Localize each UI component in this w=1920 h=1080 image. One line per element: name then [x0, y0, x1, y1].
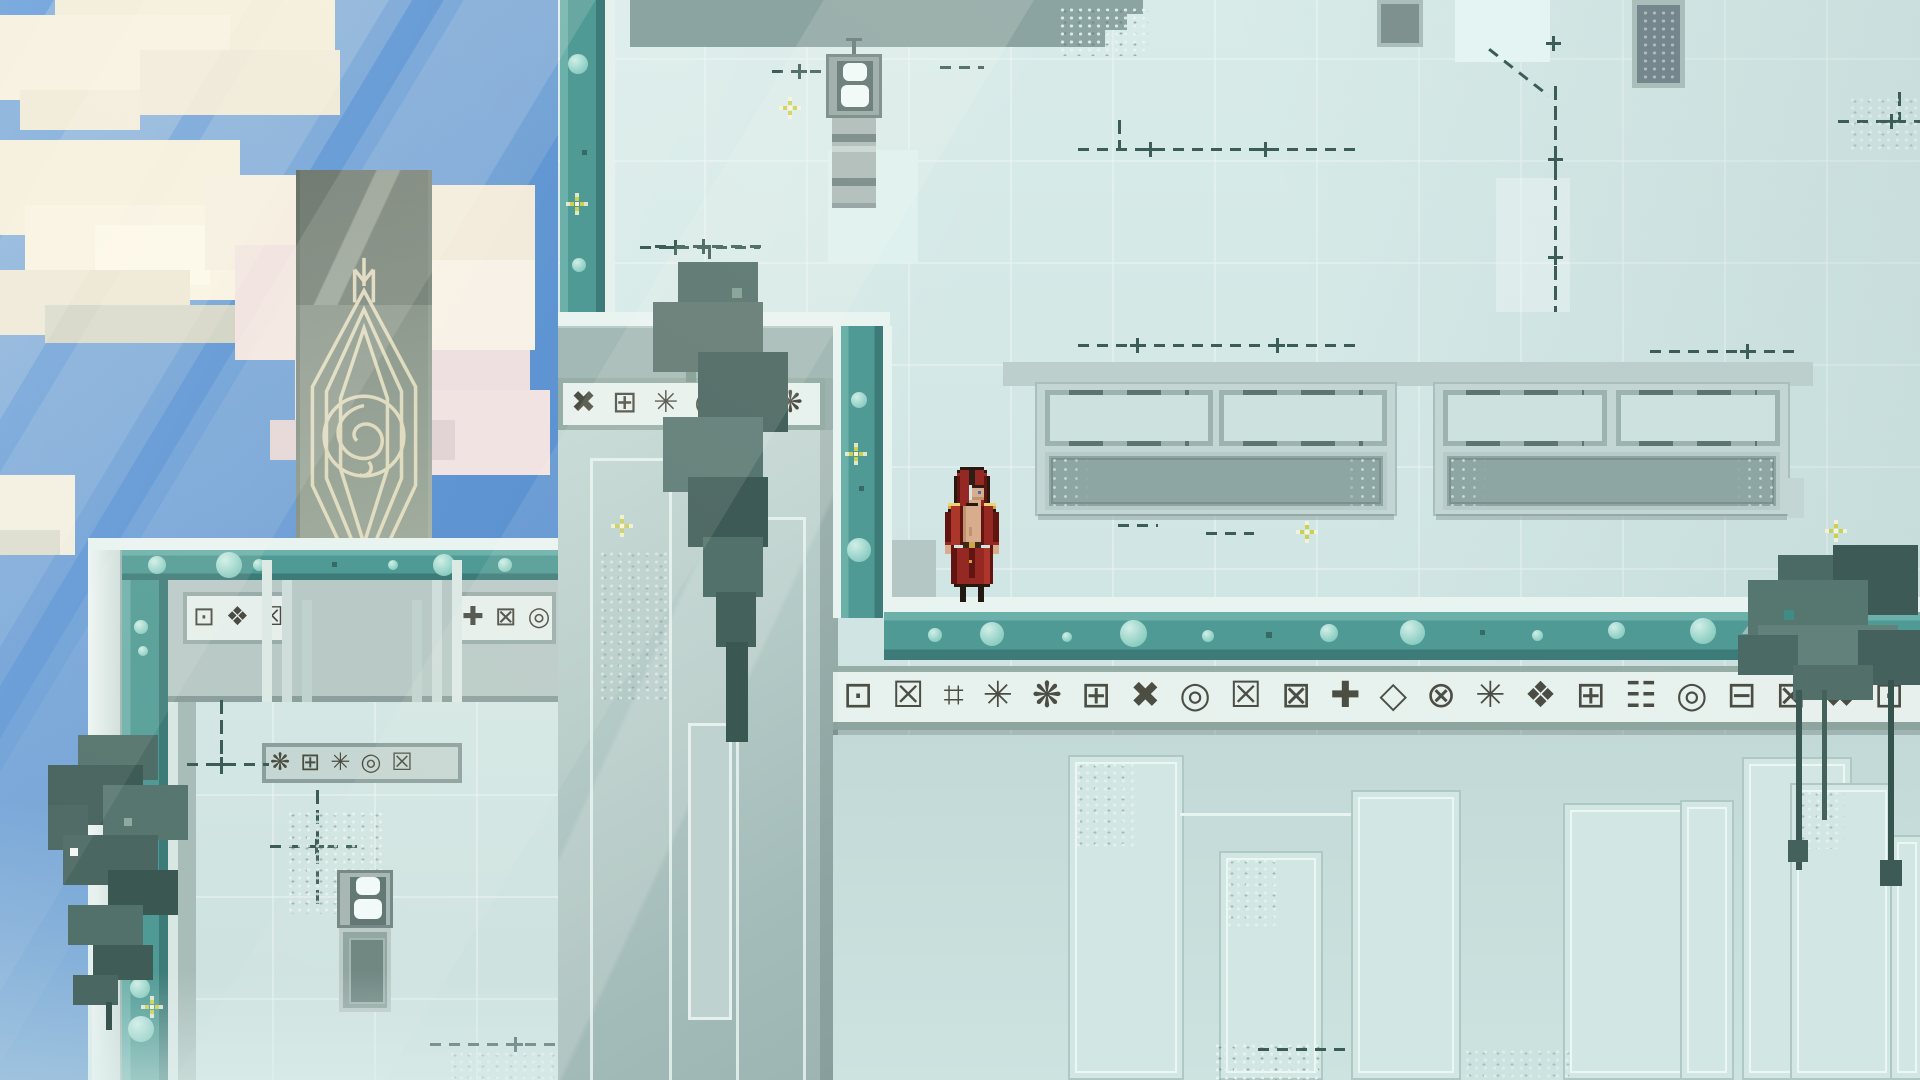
sparkle: [788, 106, 792, 110]
stone-altar-bench[interactable]: [1035, 382, 1397, 516]
crack-cross: [1546, 42, 1561, 45]
crack-cross: [1270, 344, 1285, 347]
wall-recess: [1455, 0, 1550, 62]
crack-segment: [1554, 86, 1557, 312]
vine-segment: [640, 246, 760, 249]
lantern-light: [843, 63, 867, 81]
bubble: [1120, 620, 1147, 647]
lantern-light: [841, 85, 869, 107]
trim-edge: [883, 326, 892, 618]
moss-patch: [1848, 96, 1920, 154]
bubble: [568, 54, 588, 74]
lantern-band: [832, 203, 876, 208]
foliage-highlight: [732, 288, 742, 298]
sparkle: [1305, 530, 1309, 534]
teal-trim-corner: [841, 326, 883, 618]
teal-bush: [48, 730, 198, 1030]
totem-light: [356, 877, 380, 895]
bubble: [980, 622, 1004, 646]
speck: [1480, 630, 1485, 635]
foliage-block: [716, 592, 756, 647]
crack-cross: [1740, 350, 1755, 353]
flower-pixel: [70, 848, 78, 856]
bubble: [148, 556, 166, 574]
speck: [582, 150, 587, 155]
vine-cross: [668, 246, 683, 249]
foliage-block: [1793, 665, 1873, 700]
sparkle: [1834, 529, 1838, 533]
crack-halo: [1496, 178, 1570, 312]
bubble: [851, 392, 867, 408]
crack-segment: [1118, 524, 1158, 527]
slab-lintel: [1180, 813, 1351, 816]
lantern-band: [832, 178, 876, 186]
moss-patch: [1225, 857, 1277, 927]
lantern-band: [832, 146, 876, 152]
crack-cross: [1548, 158, 1563, 161]
foliage-highlight: [124, 818, 132, 826]
lantern-band: [832, 134, 876, 142]
vine-strand: [1888, 680, 1894, 880]
crack-segment: [1078, 148, 1358, 151]
trim-edge: [605, 0, 615, 314]
stone-altar-bench[interactable]: [1433, 382, 1790, 516]
vine-leaves: [1880, 860, 1902, 886]
bench-top-panel: [1443, 390, 1607, 446]
player-sprite: [936, 467, 1008, 602]
game-viewport: ✖⊞✳◎⊠❋⊗: [0, 0, 1920, 1080]
vine-strand: [726, 642, 748, 742]
totem-light: [354, 899, 382, 919]
bench-step: [1788, 478, 1804, 518]
bubble: [1062, 632, 1072, 642]
bubble: [1532, 630, 1543, 641]
temple-structure: ✖⊞✳◎⊠❋⊗: [558, 0, 1920, 1080]
moss-patch: [1074, 761, 1134, 851]
bubble: [1690, 618, 1716, 644]
panel-mottle: [1641, 9, 1676, 79]
stone-slab: [1068, 755, 1184, 1080]
bubble: [1400, 620, 1425, 645]
bubble: [1202, 630, 1214, 642]
bench-top-panel: [1616, 390, 1780, 446]
crack-cross: [1258, 148, 1273, 151]
foliage-block: [68, 905, 143, 945]
bench-shadow: [1436, 514, 1787, 520]
crack-segment: [1118, 120, 1121, 148]
bubble: [1608, 622, 1625, 639]
bubble: [928, 628, 942, 642]
teal-tree: [1738, 540, 1920, 880]
glyph-frieze-base-text: ❋⊞✳◎☒: [266, 747, 462, 779]
sparkle: [575, 202, 579, 206]
bubble: [134, 620, 148, 634]
crack-segment: [1206, 532, 1254, 535]
vine-strand: [106, 1002, 112, 1030]
moss-patch: [1058, 6, 1148, 56]
trim-edge: [833, 326, 841, 618]
bubble: [138, 646, 148, 656]
bench-top-panel: [1045, 390, 1213, 446]
foliage-block: [103, 785, 188, 840]
crack-segment: [1078, 344, 1358, 347]
speck: [859, 486, 864, 491]
bubble: [498, 558, 512, 572]
lantern-head: [826, 54, 882, 118]
hanging-tree: [628, 222, 798, 742]
platform-lip: [88, 538, 558, 550]
foliage-highlight: [1784, 610, 1794, 620]
bubble: [847, 538, 871, 562]
bench-base-panel: [1045, 452, 1387, 510]
vine-strand: [1822, 690, 1827, 820]
stone-slab: [1680, 800, 1734, 1080]
corner-return-wall: [892, 540, 936, 602]
crack-cross: [792, 70, 807, 73]
moss-patch: [1463, 1048, 1573, 1080]
dark-wall-panel: [1377, 0, 1423, 47]
glyph-frieze-left: ✚⊠◎: [452, 592, 556, 644]
bench-base-panel: [1443, 452, 1780, 510]
player-character-red-hooded-figure[interactable]: [936, 467, 1008, 602]
crack-segment: [1650, 350, 1800, 353]
speck: [1266, 632, 1272, 638]
bubble: [216, 552, 242, 578]
crack-cross: [1548, 256, 1563, 259]
hanging-lantern[interactable]: [826, 38, 886, 208]
terrace-pillar: [688, 723, 732, 1020]
bubble: [1320, 624, 1338, 642]
dark-wall-panel: [1632, 0, 1685, 88]
crack-cross: [214, 763, 229, 766]
crack-cross: [1130, 344, 1145, 347]
totem-head: [337, 870, 393, 928]
stone-slab: [1351, 790, 1461, 1080]
foliage-block: [1738, 635, 1798, 675]
lantern-body: [832, 118, 876, 208]
bench-top-panel: [1219, 390, 1387, 446]
bubble: [572, 258, 586, 272]
teal-trim-left: [560, 0, 605, 312]
sparkle: [854, 452, 858, 456]
sparkle: [620, 524, 624, 528]
crack-segment: [1258, 1048, 1348, 1051]
bench-shadow: [1038, 514, 1394, 520]
foliage-block: [73, 975, 118, 1005]
lantern-hook-bar: [846, 38, 862, 41]
crack-cross: [1143, 148, 1158, 151]
crack-segment: [940, 66, 984, 69]
vine-leaves: [1788, 840, 1808, 862]
foliage-highlight: [686, 372, 696, 382]
foliage-block: [703, 537, 763, 597]
